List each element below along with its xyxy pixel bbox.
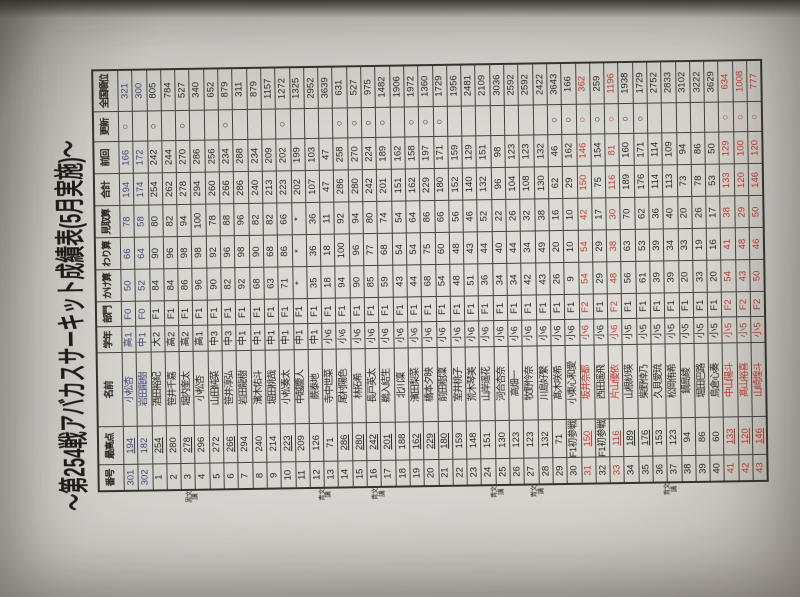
cell-best: 272: [209, 425, 224, 463]
cell-rank: 1938: [618, 62, 633, 104]
cell-update: [447, 106, 462, 136]
cell-no: 22: [453, 460, 468, 486]
cell-best: 240: [252, 425, 267, 463]
cell-mitori: 92: [334, 202, 349, 234]
cell-wari: 54: [406, 233, 421, 265]
cell-total: 278: [176, 173, 191, 205]
cell-kake: 43: [392, 265, 407, 297]
cell-no: 28: [538, 458, 553, 484]
cell-best: 286: [338, 423, 353, 461]
cell-mitori: 36: [306, 203, 321, 235]
column-header-2: 名前: [97, 353, 124, 427]
cell-mitori: 46: [463, 200, 478, 232]
cell-best: 71: [323, 423, 338, 461]
cell-kake: 51: [464, 264, 479, 296]
cell-no: 23: [467, 459, 482, 485]
cell-total: 133: [720, 164, 735, 196]
cell-wari: 63: [621, 230, 636, 262]
cell-update: ○: [604, 104, 619, 134]
cell-rank: 340: [189, 69, 204, 111]
cell-wari: 98: [192, 237, 207, 269]
cell-best: 209: [295, 424, 310, 462]
cell-best: 254: [152, 426, 167, 464]
cell-total: 280: [348, 170, 363, 202]
cell-mitori: *: [291, 203, 306, 235]
cell-wari: 64: [135, 237, 150, 269]
cell-best: 176: [638, 419, 653, 457]
cell-grade: 小6: [536, 320, 551, 346]
cell-name: 小東心和愛: [565, 346, 580, 420]
column-header-4: 部門: [96, 302, 122, 327]
cell-name: 前田樹凜: [437, 348, 452, 422]
cell-no: 29: [553, 458, 568, 484]
cell-best: 60: [709, 417, 724, 455]
cell-league: F1: [379, 298, 394, 323]
cell-update: ○: [747, 102, 762, 132]
cell-name: 山岸遥花: [479, 347, 494, 421]
cell-wari: 77: [363, 234, 378, 266]
cell-prev: 100: [733, 132, 748, 164]
cell-no: 42: [739, 455, 754, 481]
cell-kake: 94: [335, 266, 350, 298]
cell-grade: 小6: [322, 323, 337, 349]
cell-best: 148: [466, 421, 481, 459]
cell-update: ○: [176, 111, 191, 141]
column-header-0: 番号: [98, 465, 124, 491]
cell-name: 北川凜: [394, 348, 409, 422]
column-header-6: わり算: [95, 238, 121, 270]
cell-wari: 34: [664, 229, 679, 261]
cell-prev: 171: [433, 137, 448, 169]
photo-of-results-sheet: ～第254戦アバカスサーキット成績表(5月実施)～ 番号最高点名前学年部門かけ算…: [0, 0, 800, 597]
cell-rank: 1729: [632, 62, 647, 104]
cell-prev: 270: [348, 138, 363, 170]
cell-best: 242: [366, 423, 381, 461]
cell-grade: 小5: [665, 318, 680, 344]
cell-name: 髙山裕喜: [737, 343, 752, 417]
cell-update: [647, 103, 662, 133]
cell-rank: 1272: [275, 67, 290, 109]
cell-name: 鵜入結生: [379, 349, 394, 423]
cell-best: 116: [609, 419, 624, 457]
cell-wari: 48: [449, 232, 464, 264]
cell-name: 笹井千嘉: [165, 352, 180, 426]
cell-wari: 40: [492, 232, 507, 264]
cell-total: 108: [520, 167, 535, 199]
cell-league: F1: [207, 300, 222, 325]
cell-total: 266: [219, 172, 234, 204]
cell-no: 14: [338, 461, 353, 487]
cell-no: 7: [238, 463, 253, 489]
cell-update: ○: [633, 104, 648, 134]
cell-rank: 1157: [261, 67, 276, 109]
cell-grade: 高2: [179, 326, 194, 352]
cell-kake: 43: [535, 263, 550, 295]
cell-kake: 61: [635, 262, 650, 294]
cell-total: 240: [248, 172, 263, 204]
cell-rank: 879: [218, 68, 233, 110]
cell-no: 16: [367, 461, 382, 487]
cell-rank: 1360: [418, 65, 433, 107]
cell-league: F1: [679, 293, 694, 318]
cell-total: 260: [205, 172, 220, 204]
cell-grade: 小5: [708, 317, 723, 343]
cell-best: 123: [509, 421, 524, 459]
cell-rank: 634: [718, 60, 733, 102]
cell-prev: 234: [219, 140, 234, 172]
cell-wari: 92: [206, 236, 221, 268]
cell-total: 242: [362, 170, 377, 202]
cell-kake: 54: [578, 262, 593, 294]
cell-mitori: 70: [620, 198, 635, 230]
cell-total: 294: [191, 173, 206, 205]
column-header-10: 更新: [93, 112, 119, 142]
cell-league: F1: [193, 301, 208, 326]
cell-no: 37: [667, 456, 682, 482]
cell-kake: 34: [507, 264, 522, 296]
cell-best: 71: [552, 420, 567, 458]
cell-grade: 中1: [250, 325, 265, 351]
cell-no: 1: [152, 464, 167, 490]
cell-rank: 1482: [375, 66, 390, 108]
cell-league: F1: [178, 301, 193, 326]
cell-update: [304, 109, 319, 139]
cell-grade: 小6: [565, 320, 580, 346]
cell-kake: 39: [650, 261, 665, 293]
cell-kake: 20: [678, 261, 693, 293]
cell-prev: 288: [233, 140, 248, 172]
cell-league: F0: [136, 301, 151, 326]
cell-wari: 29: [592, 230, 607, 262]
cell-league: F1: [522, 295, 537, 320]
cell-update: [519, 105, 534, 135]
cell-mitori: 78: [206, 204, 221, 236]
cell-mitori: 88: [220, 204, 235, 236]
cell-best: 150: [581, 419, 596, 457]
cell-grade: 小6: [436, 322, 451, 348]
cell-wari: 43: [463, 232, 478, 264]
cell-rank: 784: [161, 69, 176, 111]
cell-update: ○: [118, 112, 133, 142]
cell-prev: 172: [133, 141, 148, 173]
cell-prev: 114: [648, 133, 663, 165]
cell-grade: 中3: [222, 325, 237, 351]
cell-mitori: 82: [248, 204, 263, 236]
cell-wari: 53: [635, 230, 650, 262]
cell-prev: 270: [176, 141, 191, 173]
cell-update: ○: [547, 105, 562, 135]
cell-name: 小松杏: [122, 353, 137, 427]
cell-wari: 86: [278, 235, 293, 267]
cell-total: 189: [620, 166, 635, 198]
cell-mitori: 100: [191, 205, 206, 237]
cell-update: [662, 103, 677, 133]
cell-kake: 18: [321, 266, 336, 298]
cell-grade: 小6: [450, 321, 465, 347]
cell-total: 162: [405, 169, 420, 201]
cell-update: ○: [433, 107, 448, 137]
cell-name: 西田遥飛: [594, 345, 609, 419]
cell-wari: 20: [549, 231, 564, 263]
cell-grade: 小6: [508, 321, 523, 347]
cell-league: F1: [479, 296, 494, 321]
cell-prev: 162: [562, 135, 577, 167]
cell-kake: 44: [407, 265, 422, 297]
cell-no: 11: [295, 462, 310, 488]
cell-wari: 10: [563, 231, 578, 263]
cell-league: F0: [121, 302, 136, 327]
cell-prev: 166: [119, 142, 134, 174]
cell-prev: 224: [362, 138, 377, 170]
cell-mitori: 42: [577, 198, 592, 230]
cell-grade: 大2: [150, 326, 165, 352]
cell-total: 113: [663, 165, 678, 197]
cell-no: 34: [624, 457, 639, 483]
cell-name: 室井桃子: [451, 347, 466, 421]
cell-wari: 44: [506, 232, 521, 264]
cell-rank: 1906: [389, 65, 404, 107]
cell-mitori: 10: [563, 199, 578, 231]
cell-update: ○: [561, 105, 576, 135]
cell-prev: 158: [405, 137, 420, 169]
cell-best: 182: [138, 426, 153, 464]
cell-rank: 311: [232, 68, 247, 110]
cell-prev: 120: [748, 132, 763, 164]
cell-total: 176: [634, 166, 649, 198]
cell-mitori: 54: [391, 201, 406, 233]
cell-wari: 48: [735, 228, 750, 260]
cell-league: F1: [393, 297, 408, 322]
cell-no: 40: [710, 455, 725, 481]
cell-grade: 中1: [293, 324, 308, 350]
cell-total: 120: [734, 164, 749, 196]
column-header-11: 全国順位: [92, 70, 118, 112]
cell-prev: 234: [247, 140, 262, 172]
cell-total: 75: [591, 166, 606, 198]
cell-no: 9: [267, 462, 282, 488]
cell-update: [533, 105, 548, 135]
cell-grade: 小6: [579, 319, 594, 345]
cell-prev: 132: [533, 135, 548, 167]
cell-grade: 小6: [350, 323, 365, 349]
cell-name: 笹井淳弘: [222, 351, 237, 425]
cell-mitori: 94: [349, 202, 364, 234]
cell-grade: 小5: [694, 318, 709, 344]
cell-best: F1初参戦: [566, 420, 581, 458]
cell-name: 濱木佑斗: [251, 351, 266, 425]
margin-note: 黒文講: [186, 491, 200, 503]
cell-no: 3: [181, 464, 196, 490]
cell-kake: 39: [664, 261, 679, 293]
cell-league: F1: [236, 300, 251, 325]
cell-name: 中越慶人: [294, 350, 309, 424]
cell-kake: 68: [421, 265, 436, 297]
cell-league: F1: [221, 300, 236, 325]
cell-rank: 631: [332, 66, 347, 108]
cell-grade: 小5: [651, 318, 666, 344]
cell-update: [133, 111, 148, 141]
cell-kake: 85: [364, 266, 379, 298]
cell-update: ○: [276, 109, 291, 139]
cell-update: [490, 106, 505, 136]
cell-mitori: 82: [263, 203, 278, 235]
cell-name: 川島好繫: [537, 346, 552, 420]
cell-total: 130: [534, 167, 549, 199]
cell-wari: 19: [692, 229, 707, 261]
cell-kake: 20: [707, 260, 722, 292]
cell-grade: 小6: [393, 322, 408, 348]
cell-wari: 46: [749, 228, 764, 260]
cell-rank: 3639: [318, 67, 333, 109]
cell-mitori: 38: [720, 196, 735, 228]
cell-update: [504, 106, 519, 136]
cell-wari: 90: [249, 236, 264, 268]
cell-rank: 1956: [446, 64, 461, 106]
cell-wari: 36: [306, 235, 321, 267]
cell-update: [676, 103, 691, 133]
cell-name: 久貝愛琉: [651, 344, 666, 418]
cell-league: F1: [250, 300, 265, 325]
cell-best: 130: [495, 421, 510, 459]
cell-total: 254: [148, 173, 163, 205]
cell-league: F1: [593, 294, 608, 319]
cell-league: F1: [464, 296, 479, 321]
margin-note: 青文講: [492, 486, 506, 498]
cell-name: 髙木咲希: [551, 346, 566, 420]
cell-update: [461, 106, 476, 136]
cell-mitori: 17: [592, 198, 607, 230]
cell-update: ○: [576, 104, 591, 134]
cell-kake: 48: [607, 262, 622, 294]
cell-rank: 527: [346, 66, 361, 108]
cell-total: 53: [705, 164, 720, 196]
cell-rank: 2952: [304, 67, 319, 109]
cell-league: F1: [293, 299, 308, 324]
cell-update: ○: [619, 104, 634, 134]
cell-prev: 197: [419, 137, 434, 169]
results-table-body: 番号最高点名前学年部門かけ算わり算見取算合計前回更新全国順位301194小松杏高…: [92, 60, 768, 492]
cell-kake: 92: [235, 268, 250, 300]
cell-wari: 68: [263, 235, 278, 267]
cell-best: 223: [281, 424, 296, 462]
cell-kake: 29: [593, 262, 608, 294]
cell-total: 213: [262, 171, 277, 203]
cell-kake: 43: [736, 260, 751, 292]
cell-best: 280: [166, 426, 181, 464]
cell-rank: 259: [589, 62, 604, 104]
cell-name: 中山陽斗: [723, 343, 738, 417]
cell-prev: 258: [333, 138, 348, 170]
cell-rank: 2752: [647, 61, 662, 103]
cell-wari: 16: [706, 228, 721, 260]
cell-league: F1: [336, 298, 351, 323]
cell-rank: 166: [561, 63, 576, 105]
cell-update: ○: [733, 102, 748, 132]
cell-rank: 527: [175, 69, 190, 111]
cell-name: 蕨泰地: [308, 350, 323, 424]
cell-league: F1: [507, 296, 522, 321]
cell-league: F2: [579, 294, 594, 319]
cell-league: F1: [407, 297, 422, 322]
cell-no: 15: [353, 461, 368, 487]
cell-kake: 56: [621, 262, 636, 294]
cell-prev: 202: [276, 139, 291, 171]
cell-name: 松岡侑希: [665, 344, 680, 418]
cell-grade: 高2: [165, 326, 180, 352]
cell-update: [190, 111, 205, 141]
cell-best: 123: [524, 420, 539, 458]
cell-prev: 81: [605, 134, 620, 166]
cell-mitori: 20: [677, 197, 692, 229]
cell-prev: 160: [619, 134, 634, 166]
cell-kake: 33: [693, 261, 708, 293]
cell-name: 片山優依: [608, 345, 623, 419]
cell-wari: 39: [649, 229, 664, 261]
cell-best: 132: [538, 420, 553, 458]
cell-update: [690, 103, 705, 133]
cell-rank: 3036: [489, 64, 504, 106]
cell-best: 180: [438, 422, 453, 460]
cell-total: 151: [391, 169, 406, 201]
cell-wari: 96: [220, 236, 235, 268]
column-header-8: 合計: [94, 174, 120, 206]
cell-total: 180: [434, 169, 449, 201]
cell-kake: 26: [550, 263, 565, 295]
cell-best: 123: [666, 418, 681, 456]
margin-note: 青文講: [319, 489, 333, 501]
cell-name: 鳥倉心奏: [708, 343, 723, 417]
cell-update: ○: [376, 108, 391, 138]
cell-best: 214: [266, 424, 281, 462]
cell-mitori: 38: [534, 199, 549, 231]
cell-total: 78: [691, 165, 706, 197]
cell-league: F2: [607, 294, 622, 319]
cell-prev: 109: [662, 133, 677, 165]
cell-mitori: 80: [148, 205, 163, 237]
cell-update: ○: [419, 107, 434, 137]
cell-total: 201: [377, 170, 392, 202]
cell-mitori: 11: [320, 202, 335, 234]
cell-rank: 1196: [604, 62, 619, 104]
cell-grade: 小5: [736, 317, 751, 343]
cell-name: 山根紗瑛: [622, 345, 637, 419]
cell-best: 162: [409, 422, 424, 460]
cell-total: 262: [162, 173, 177, 205]
cell-name: 河合杏奈: [494, 347, 509, 421]
cell-mitori: 29: [734, 196, 749, 228]
cell-wari: 66: [120, 238, 135, 270]
paper-sheet: ～第254戦アバカスサーキット成績表(5月実施)～ 番号最高点名前学年部門かけ算…: [49, 58, 732, 505]
cell-league: F1: [279, 299, 294, 324]
cell-league: F1: [622, 294, 637, 319]
cell-rank: 2592: [518, 63, 533, 105]
cell-grade: 小5: [636, 319, 651, 345]
cell-prev: 244: [162, 141, 177, 173]
cell-best: 229: [423, 422, 438, 460]
cell-prev: 146: [576, 134, 591, 166]
cell-kake: 63: [264, 267, 279, 299]
cell-league: F1: [550, 295, 565, 320]
cell-wari: 96: [163, 237, 178, 269]
cell-no: 17: [381, 461, 396, 487]
cell-no: 21: [438, 460, 453, 486]
cell-total: 96: [491, 168, 506, 200]
cell-rank: 2109: [475, 64, 490, 106]
cell-league: F1: [636, 294, 651, 319]
cell-no: 20: [424, 460, 439, 486]
cell-grade: 小6: [336, 323, 351, 349]
cell-wari: 33: [678, 229, 693, 261]
